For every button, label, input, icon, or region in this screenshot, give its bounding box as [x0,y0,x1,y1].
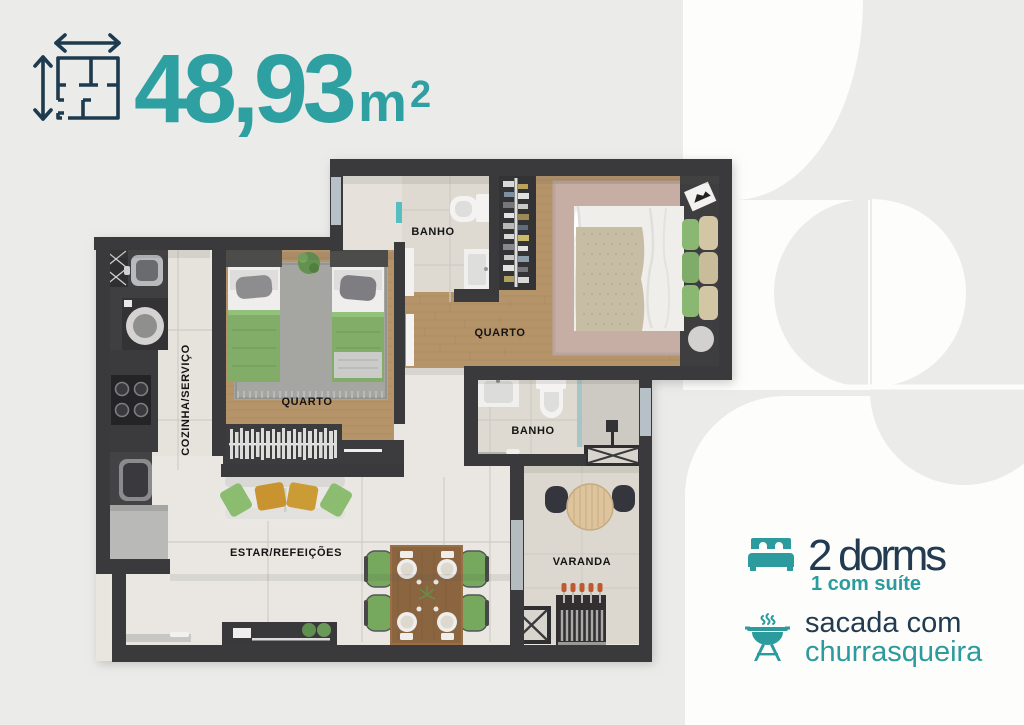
svg-text:churrasqueira: churrasqueira [805,636,983,668]
svg-text:1 com suíte: 1 com suíte [811,573,921,595]
svg-text:VARANDA: VARANDA [553,556,611,568]
svg-text:COZINHA/SERVIÇO: COZINHA/SERVIÇO [180,344,192,455]
svg-text:sacada com: sacada com [805,607,961,639]
svg-text:m: m [358,71,407,133]
svg-text:2: 2 [410,74,431,116]
svg-text:BANHO: BANHO [511,425,554,437]
svg-text:BANHO: BANHO [411,226,454,238]
svg-text:48,93: 48,93 [134,34,354,143]
svg-text:QUARTO: QUARTO [281,396,332,408]
svg-text:QUARTO: QUARTO [474,327,525,339]
svg-text:ESTAR/REFEIÇÕES: ESTAR/REFEIÇÕES [230,546,342,559]
